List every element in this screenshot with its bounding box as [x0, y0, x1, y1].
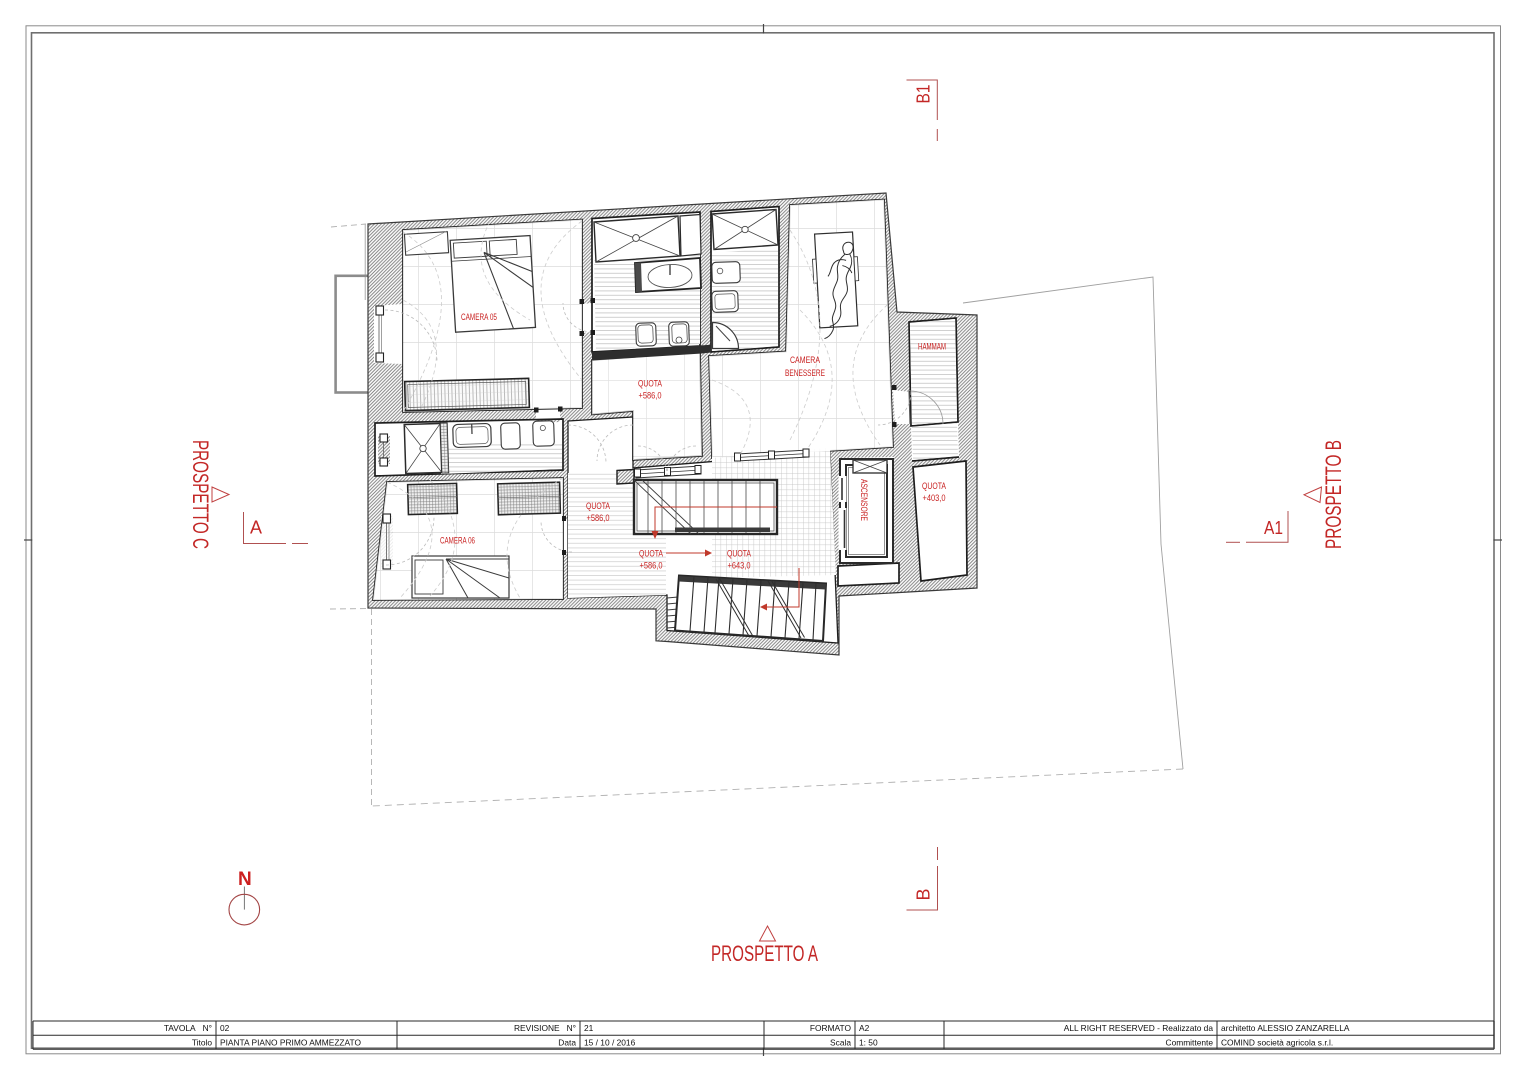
svg-text:BENESSERE: BENESSERE	[785, 368, 825, 379]
svg-text:ALL RIGHT RESERVED - Realizzat: ALL RIGHT RESERVED - Realizzato da	[1064, 1023, 1214, 1033]
svg-text:A: A	[250, 518, 262, 538]
svg-text:QUOTA: QUOTA	[639, 549, 663, 560]
svg-text:A1: A1	[1264, 518, 1283, 538]
svg-text:02: 02	[220, 1023, 230, 1033]
svg-text:+586,0: +586,0	[639, 391, 662, 402]
svg-text:CAMERA 06: CAMERA 06	[440, 536, 475, 547]
svg-text:CAMERA 05: CAMERA 05	[461, 312, 497, 323]
svg-text:Titolo: Titolo	[192, 1038, 213, 1048]
svg-text:PROSPETTO B: PROSPETTO B	[1321, 440, 1346, 549]
svg-text:Committente: Committente	[1166, 1038, 1214, 1048]
svg-text:15 / 10 / 2016: 15 / 10 / 2016	[584, 1038, 636, 1048]
svg-text:architetto ALESSIO ZANZARELLA: architetto ALESSIO ZANZARELLA	[1221, 1023, 1350, 1033]
svg-text:+586,0: +586,0	[587, 513, 610, 524]
svg-text:TAVOLA N°: TAVOLA N°	[164, 1023, 212, 1033]
svg-text:QUOTA: QUOTA	[727, 549, 751, 560]
svg-text:+643,0: +643,0	[728, 561, 751, 572]
svg-text:21: 21	[584, 1023, 594, 1033]
svg-text:+586,0: +586,0	[640, 561, 663, 572]
svg-text:+403,0: +403,0	[923, 493, 946, 504]
svg-text:B1: B1	[914, 85, 934, 104]
svg-text:PIANTA PIANO PRIMO AMMEZZATO: PIANTA PIANO PRIMO AMMEZZATO	[220, 1038, 361, 1048]
svg-text:REVISIONE N°: REVISIONE N°	[514, 1023, 576, 1033]
svg-text:1: 50: 1: 50	[859, 1038, 878, 1048]
svg-text:Scala: Scala	[830, 1038, 851, 1048]
svg-text:QUOTA: QUOTA	[922, 481, 946, 492]
svg-text:QUOTA: QUOTA	[638, 379, 662, 390]
svg-text:CAMERA: CAMERA	[790, 355, 820, 366]
svg-text:QUOTA: QUOTA	[586, 501, 610, 512]
svg-text:PROSPETTO C: PROSPETTO C	[188, 440, 213, 549]
svg-text:HAMMAM: HAMMAM	[918, 342, 946, 353]
svg-text:ASCENSORE: ASCENSORE	[858, 479, 869, 521]
svg-text:A2: A2	[859, 1023, 870, 1033]
svg-text:PROSPETTO A: PROSPETTO A	[711, 941, 818, 966]
svg-text:COMIND società agricola s.r.l.: COMIND società agricola s.r.l.	[1221, 1038, 1333, 1048]
svg-text:B: B	[914, 889, 934, 901]
svg-text:Data: Data	[558, 1038, 576, 1048]
svg-text:FORMATO: FORMATO	[810, 1023, 852, 1033]
